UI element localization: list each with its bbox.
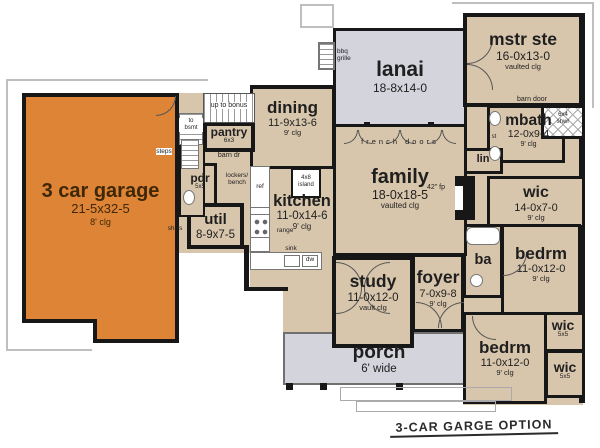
st-label: st xyxy=(487,134,501,141)
wic1-name: wic xyxy=(541,318,585,332)
master-suite-label: mstr ste 16-0x13-0 vaulted clg xyxy=(463,30,583,71)
steps-text: steps xyxy=(156,148,172,155)
util-dims: 8-9x7-5 xyxy=(187,229,244,242)
roof-line xyxy=(6,79,8,351)
master-wic-name: wic xyxy=(487,184,585,202)
shlvs-label: shlvs xyxy=(160,225,190,232)
bedroom2-clg: 9' clg xyxy=(463,369,547,377)
porch-post xyxy=(320,383,327,390)
wic2-label: wic 5x5 xyxy=(545,360,585,381)
island-text1: 4x8 xyxy=(291,175,321,182)
garage-dims: 21-5x32-5 xyxy=(22,202,179,217)
master-bath-clg: 9' clg xyxy=(492,141,565,149)
bbq-grille-label: bbq grille xyxy=(337,48,365,63)
wall-segment xyxy=(244,287,288,291)
shower-text1: 6x4 xyxy=(541,112,585,119)
roof-line xyxy=(592,2,594,108)
sink-fixture xyxy=(284,255,300,267)
french-doors-label: french doors xyxy=(333,138,467,147)
barn-dr-label: barn dr xyxy=(203,152,255,160)
up-to-bonus-label: up to bonus xyxy=(203,102,255,110)
fireplace-label: 42" fp xyxy=(420,184,452,192)
wic2-name: wic xyxy=(545,360,585,374)
entry-step-outline xyxy=(340,387,512,401)
plan-title: 3-CAR GARGE OPTION xyxy=(390,417,558,438)
floor-plan-canvas: 3 car garage 21-5x32-5 8' clg dining 11-… xyxy=(0,0,600,448)
foyer-label: foyer 7-0x9-8 9' clg xyxy=(410,268,466,308)
dw-label: dw xyxy=(302,256,318,263)
bedroom1-name: bedrm xyxy=(501,244,581,263)
porch-name: porch xyxy=(283,342,475,363)
bedroom2-label: bedrm 11-0x12-0 9' clg xyxy=(463,338,547,378)
master-bath-dims: 12-0x9-4 xyxy=(492,129,565,141)
wic2-dims: 5x5 xyxy=(545,374,585,381)
to-bsmt-label: to bsmt xyxy=(179,118,203,132)
linen-text: lin xyxy=(463,153,503,165)
util-label: util 8-9x7-5 xyxy=(187,212,244,242)
study-name: study xyxy=(332,272,414,292)
pantry-label: pantry 6x3 xyxy=(203,126,255,145)
bedroom1-clg: 9' clg xyxy=(501,275,581,283)
bedroom2-name: bedrm xyxy=(463,338,547,357)
master-suite-dims: 16-0x13-0 xyxy=(463,50,583,63)
study-clg: vault clg xyxy=(332,304,414,312)
ref-label: ref xyxy=(250,183,270,190)
master-wic-label: wic 14-0x7-0 9' clg xyxy=(487,184,585,223)
garage-clg: 8' clg xyxy=(22,217,179,227)
lockers-text1: lockers/ xyxy=(214,172,260,179)
garage-room-notch xyxy=(93,319,179,343)
chimney-outline xyxy=(300,4,334,28)
lanai-dims: 18-8x14-0 xyxy=(333,82,467,95)
wic1-label: wic 5x5 xyxy=(541,318,585,339)
bbq-text1: bbq xyxy=(337,48,365,55)
dining-clg: 9' clg xyxy=(250,129,335,137)
bath-label: ba xyxy=(463,252,503,268)
util-name: util xyxy=(187,212,244,229)
wall-segment xyxy=(244,245,249,291)
to-bsmt-text1: to xyxy=(179,118,203,125)
foyer-clg: 9' clg xyxy=(410,300,466,308)
bath-name: ba xyxy=(463,252,503,268)
linen-label: lin xyxy=(463,153,503,165)
bathtub xyxy=(466,227,500,245)
range-label: range xyxy=(271,227,299,234)
up-to-bonus-text: up to bonus xyxy=(211,102,248,109)
to-bsmt-text2: bsmt xyxy=(179,125,203,132)
lanai-label: lanai 18-8x14-0 xyxy=(333,58,467,95)
roof-line xyxy=(452,2,594,4)
shower-label: 6x4 shwr xyxy=(541,112,585,126)
entry-step-outline xyxy=(356,401,496,412)
family-clg: vaulted clg xyxy=(333,202,467,211)
master-suite-name: mstr ste xyxy=(463,30,583,50)
study-label: study 11-0x12-0 vault clg xyxy=(332,272,414,313)
foyer-name: foyer xyxy=(410,268,466,288)
kitchen-name: kitchen xyxy=(258,192,346,210)
dining-name: dining xyxy=(250,98,335,117)
powder-toilet xyxy=(183,190,195,205)
roof-line xyxy=(6,349,92,351)
roof-line xyxy=(6,79,208,81)
bedroom1-label: bedrm 11-0x12-0 9' clg xyxy=(501,244,581,284)
island-label: 4x8 island xyxy=(291,175,321,189)
garage-name: 3 car garage xyxy=(22,180,179,202)
master-suite-clg: vaulted clg xyxy=(463,63,583,71)
master-wic-clg: 9' clg xyxy=(487,214,585,222)
sink-label: sink xyxy=(278,245,304,252)
wic1-dims: 5x5 xyxy=(541,332,585,339)
shower-text2: shwr xyxy=(541,119,585,126)
porch-post xyxy=(286,383,293,390)
garage-label: 3 car garage 21-5x32-5 8' clg xyxy=(22,180,179,227)
entry-steps xyxy=(181,139,199,169)
steps-label: steps xyxy=(150,148,178,155)
barn-door-label: barn door xyxy=(500,96,564,104)
porch-label: porch 6' wide xyxy=(283,342,475,376)
island-text2: island xyxy=(291,182,321,189)
bath-sink xyxy=(470,274,483,287)
porch-dims: 6' wide xyxy=(283,363,475,376)
bbq-text2: grille xyxy=(337,55,365,62)
dining-label: dining 11-9x13-6 9' clg xyxy=(250,98,335,138)
